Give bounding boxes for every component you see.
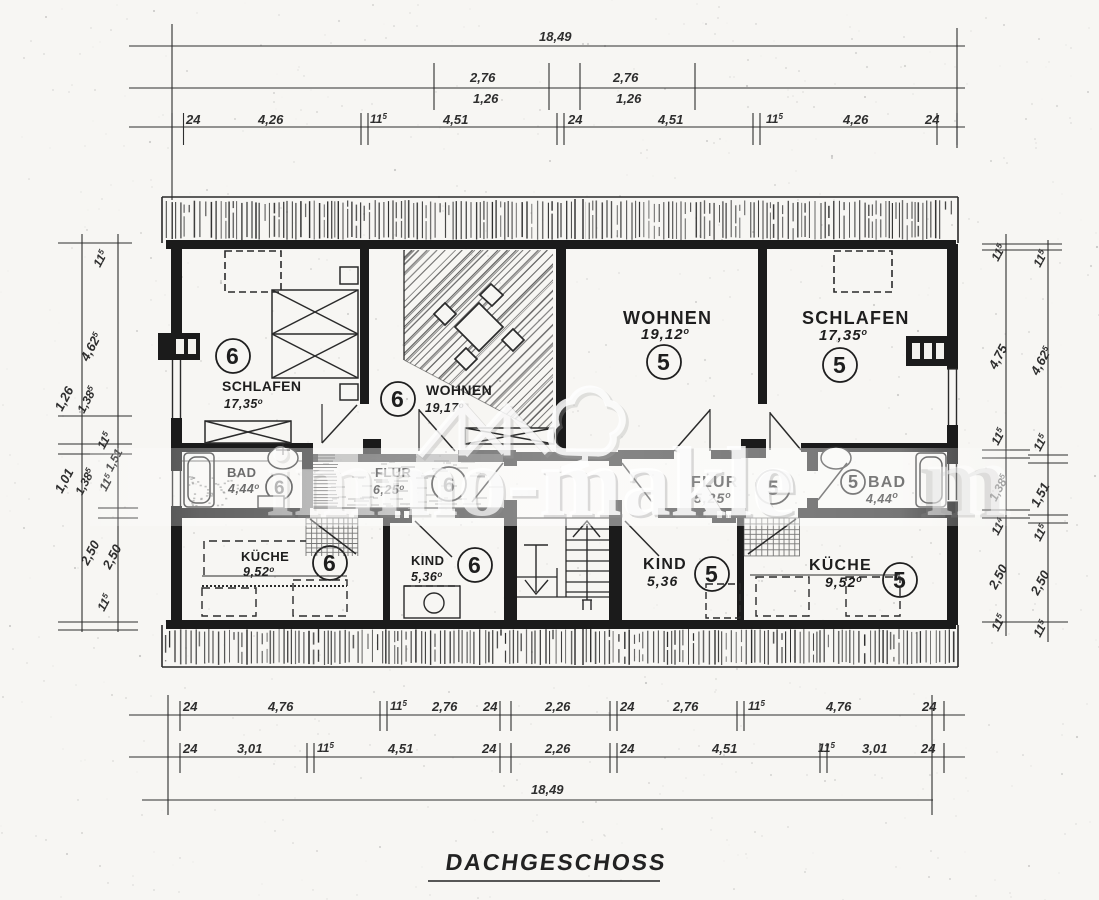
svg-text:4,76: 4,76 <box>267 699 294 714</box>
svg-text:17,35o: 17,35o <box>819 327 868 344</box>
svg-text:DACHGESCHOSS: DACHGESCHOSS <box>444 849 668 875</box>
svg-text:24: 24 <box>921 699 937 714</box>
svg-text:2,26: 2,26 <box>544 741 571 756</box>
svg-text:2,26: 2,26 <box>544 699 571 714</box>
svg-text:5: 5 <box>657 349 670 375</box>
svg-text:WOHNEN: WOHNEN <box>426 382 492 398</box>
svg-text:5: 5 <box>705 561 718 587</box>
svg-text:4,76: 4,76 <box>825 699 852 714</box>
svg-text:WOHNEN: WOHNEN <box>623 308 712 328</box>
svg-text:5: 5 <box>833 352 846 378</box>
svg-text:2,76: 2,76 <box>612 70 639 85</box>
svg-text:KIND: KIND <box>411 553 444 568</box>
svg-text:immo-makle: immo-makle <box>266 426 795 537</box>
svg-text:24: 24 <box>185 112 201 127</box>
svg-text:18,49: 18,49 <box>539 29 572 44</box>
svg-text:24: 24 <box>619 741 635 756</box>
svg-text:6: 6 <box>391 386 404 412</box>
svg-text:6: 6 <box>226 343 239 369</box>
svg-text:17,35o: 17,35o <box>224 397 263 411</box>
svg-text:2,76: 2,76 <box>431 699 458 714</box>
svg-text:24: 24 <box>920 741 936 756</box>
svg-text:KIND: KIND <box>643 556 687 573</box>
svg-text:24: 24 <box>619 699 635 714</box>
svg-text:24: 24 <box>481 741 497 756</box>
svg-text:2,76: 2,76 <box>672 699 699 714</box>
svg-text:5,36: 5,36 <box>647 573 678 589</box>
svg-text:KÜCHE: KÜCHE <box>809 555 872 574</box>
svg-text:4,51: 4,51 <box>442 112 468 127</box>
svg-text:24: 24 <box>182 699 198 714</box>
svg-text:6: 6 <box>468 552 481 578</box>
svg-text:4,51: 4,51 <box>657 112 683 127</box>
svg-text:3,01: 3,01 <box>862 741 887 756</box>
svg-text:24: 24 <box>182 741 198 756</box>
svg-text:SCHLAFEN: SCHLAFEN <box>802 308 910 328</box>
svg-text:3,01: 3,01 <box>237 741 262 756</box>
svg-text:6: 6 <box>323 550 336 576</box>
svg-text:24: 24 <box>482 699 498 714</box>
svg-text:4,26: 4,26 <box>257 112 284 127</box>
svg-text:1,26: 1,26 <box>473 91 499 106</box>
svg-text:4,26: 4,26 <box>842 112 869 127</box>
svg-text:m: m <box>925 421 1012 538</box>
svg-text:2,76: 2,76 <box>469 70 496 85</box>
svg-text:4,51: 4,51 <box>387 741 413 756</box>
svg-text:4,51: 4,51 <box>711 741 737 756</box>
svg-text:19,12o: 19,12o <box>641 326 690 343</box>
svg-text:KÜCHE: KÜCHE <box>241 549 289 564</box>
svg-text:SCHLAFEN: SCHLAFEN <box>222 378 301 394</box>
svg-text:1,26: 1,26 <box>616 91 642 106</box>
svg-text:18,49: 18,49 <box>531 782 564 797</box>
svg-text:24: 24 <box>567 112 583 127</box>
svg-text:24: 24 <box>924 112 940 127</box>
